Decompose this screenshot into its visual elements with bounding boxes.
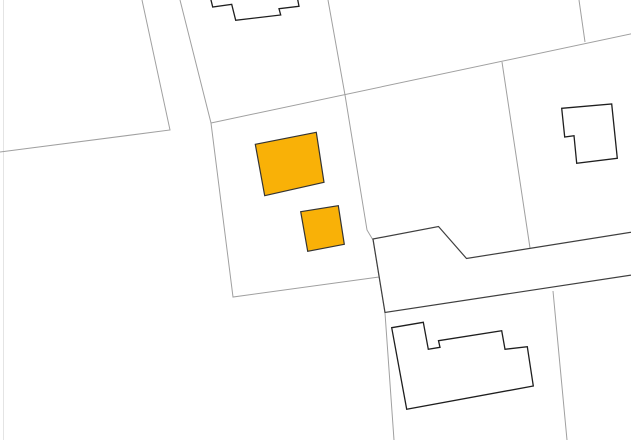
road-polygon[interactable] (373, 227, 631, 313)
building-top-right[interactable] (562, 104, 618, 163)
map-viewport[interactable] (0, 0, 631, 440)
highlighted-building-large[interactable] (255, 132, 324, 195)
parcel-line-top-right (579, 0, 585, 42)
highlighted-building-small[interactable] (301, 206, 345, 252)
parcel-line-right-upper (502, 62, 530, 248)
building-bottom-center[interactable] (392, 322, 534, 409)
parcel-line-northwest (0, 0, 170, 152)
cadastral-map[interactable] (0, 0, 631, 440)
building-top-center[interactable] (210, 0, 299, 20)
parcel-line-right-lower (553, 291, 567, 440)
